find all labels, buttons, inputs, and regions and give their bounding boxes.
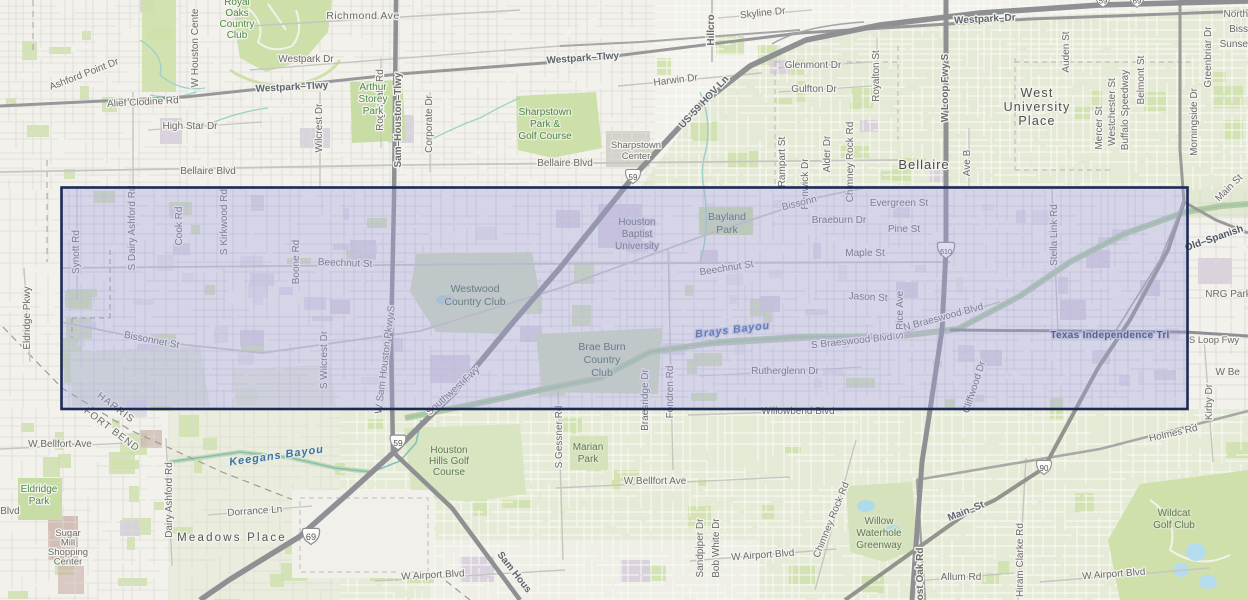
svg-text:Bellaire: Bellaire [898, 157, 949, 172]
svg-text:Westpark Dr: Westpark Dr [278, 54, 334, 65]
svg-text:Buffalo Speedway: Buffalo Speedway [1120, 70, 1131, 150]
svg-text:Park: Park [363, 106, 385, 117]
svg-text:Houston: Houston [430, 445, 467, 456]
svg-text:Greenbriar Dr: Greenbriar Dr [1203, 26, 1214, 88]
svg-text:W Bellfort-Ave: W Bellfort-Ave [28, 439, 92, 450]
svg-text:North: North [1224, 9, 1248, 20]
svg-text:Center: Center [622, 151, 651, 162]
svg-text:Club: Club [227, 30, 248, 41]
svg-text:Sandpiper Dr: Sandpiper Dr [695, 518, 706, 578]
svg-text:University: University [1004, 100, 1071, 114]
svg-text:Bellaire Blvd: Bellaire Blvd [180, 166, 236, 177]
svg-text:Golf Course: Golf Course [518, 131, 572, 142]
svg-text:Hiram Clarke Rd: Hiram Clarke Rd [1015, 523, 1026, 597]
svg-text:Blvd: Blvd [0, 506, 19, 517]
svg-text:Dairy Ashford Rd: Dairy Ashford Rd [164, 462, 175, 538]
svg-text:Park: Park [29, 496, 51, 507]
svg-text:Westchester St: Westchester St [1107, 78, 1118, 146]
svg-text:Center: Center [54, 557, 83, 568]
svg-text:Storey: Storey [359, 94, 388, 105]
svg-text:59: 59 [629, 173, 638, 182]
svg-text:59: 59 [393, 438, 403, 448]
svg-text:Mercer St: Mercer St [1094, 106, 1105, 150]
svg-text:S Loop Fwy: S Loop Fwy [1189, 335, 1239, 346]
svg-text:69: 69 [306, 532, 316, 542]
svg-text:West: West [1020, 86, 1053, 100]
svg-text:S Gessner Rd: S Gessner Rd [554, 406, 565, 469]
svg-text:Wilcrest Dr: Wilcrest Dr [314, 103, 325, 153]
svg-text:Morningside Dr: Morningside Dr [1189, 87, 1200, 155]
svg-text:Arthur: Arthur [359, 82, 387, 93]
svg-text:Waterhole: Waterhole [856, 528, 902, 539]
svg-text:Sam–Houston–Tlwy: Sam–Houston–Tlwy [393, 72, 404, 167]
svg-text:Bellaire Blvd: Bellaire Blvd [537, 158, 593, 169]
svg-text:Biss: Biss [1229, 24, 1248, 35]
svg-text:Country: Country [219, 19, 254, 30]
svg-text:Sharpstown: Sharpstown [519, 107, 572, 118]
svg-text:Greenway: Greenway [856, 540, 902, 551]
svg-text:Allum Rd: Allum Rd [941, 572, 982, 583]
svg-text:Royalton St: Royalton St [871, 50, 882, 102]
svg-text:Marian: Marian [573, 442, 604, 453]
svg-text:Royal: Royal [224, 0, 250, 8]
svg-text:Glenmont Dr: Glenmont Dr [785, 60, 842, 71]
svg-text:Sunse: Sunse [1220, 39, 1248, 50]
svg-text:W Be: W Be [1216, 367, 1241, 378]
svg-text:Course: Course [433, 467, 466, 478]
svg-text:Ave B: Ave B [962, 149, 973, 176]
svg-text:W Loop Fwy S: W Loop Fwy S [940, 54, 951, 123]
svg-text:NRG Park: NRG Park [1205, 289, 1248, 300]
svg-text:Park &: Park & [530, 119, 560, 130]
svg-text:Golf Club: Golf Club [1153, 520, 1195, 531]
svg-text:High Star Dr: High Star Dr [162, 121, 218, 132]
svg-text:Oaks: Oaks [225, 8, 248, 19]
svg-text:69: 69 [1133, 0, 1141, 6]
svg-text:Hillcro: Hillcro [706, 14, 717, 45]
svg-text:Alder Dr: Alder Dr [822, 135, 833, 172]
svg-text:Hills Golf: Hills Golf [429, 456, 469, 467]
svg-text:Park: Park [578, 454, 600, 465]
svg-text:Rampart St: Rampart St [777, 136, 788, 187]
svg-text:Richmond Ave: Richmond Ave [326, 10, 400, 22]
svg-text:Corporate Dr: Corporate Dr [424, 94, 435, 152]
svg-text:Gulfton Dr: Gulfton Dr [791, 84, 837, 95]
svg-text:W Bellfort Ave: W Bellfort Ave [624, 476, 687, 487]
svg-text:Willow: Willow [865, 516, 895, 527]
svg-text:Kirby Dr: Kirby Dr [1204, 383, 1215, 420]
svg-text:Meadows Place: Meadows Place [177, 532, 287, 544]
svg-text:S Post Oak Rd: S Post Oak Rd [915, 548, 926, 600]
svg-text:Wildcat: Wildcat [1158, 508, 1191, 519]
svg-text:Eldridge: Eldridge [21, 484, 58, 495]
svg-text:Auden St: Auden St [1061, 31, 1072, 72]
svg-text:Belmont St: Belmont St [1136, 55, 1147, 104]
svg-text:90: 90 [1040, 464, 1049, 473]
svg-text:Eldridge Pkwy: Eldridge Pkwy [22, 286, 33, 349]
svg-text:Sharpstown: Sharpstown [611, 140, 661, 151]
svg-text:Place: Place [1018, 114, 1055, 128]
svg-text:Bob White Dr: Bob White Dr [711, 518, 722, 578]
svg-text:W Houston Cente: W Houston Cente [190, 8, 201, 87]
svg-text:59: 59 [1099, 0, 1107, 6]
